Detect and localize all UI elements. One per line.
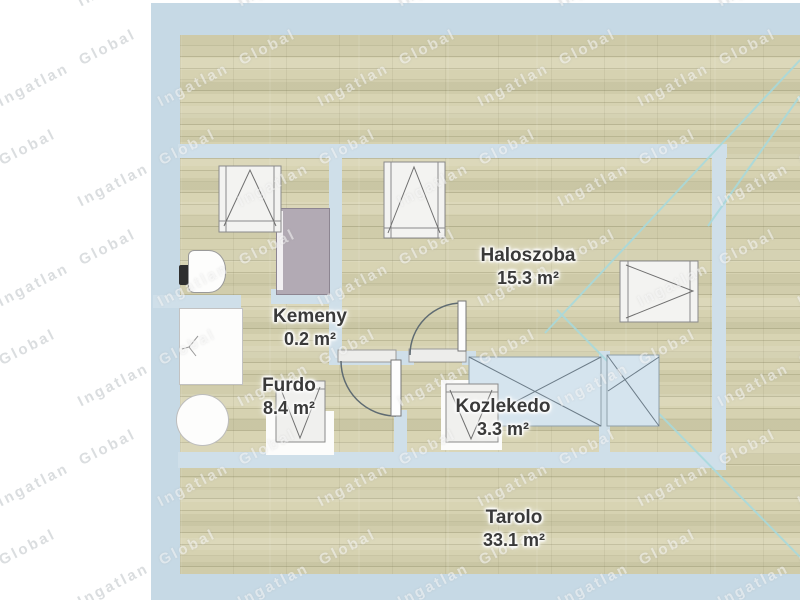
wall-furdo-kozlekedo [394, 410, 407, 468]
shower-partition [153, 295, 241, 308]
outer-wall-bottom [151, 574, 800, 600]
floorplan-canvas: Ingatlan GlobalIngatlan GlobalIngatlan G… [0, 0, 800, 600]
wall-furdo-haloszoba [329, 144, 342, 365]
wood-floor [180, 35, 800, 574]
wall-rooms-top [178, 144, 727, 158]
outer-wall-top [151, 3, 800, 35]
wardrobe-door-strip [277, 211, 283, 290]
wall-rooms-bottom [178, 452, 726, 468]
bathtub [176, 394, 229, 446]
kozlekedo-window-recess [441, 380, 502, 450]
wardrobe [276, 208, 330, 295]
wall-furdo-south [329, 351, 414, 365]
toilet [188, 250, 226, 293]
wall-kozlekedo-north [462, 351, 476, 365]
floorplan [0, 0, 800, 600]
shower-tray [179, 308, 243, 385]
furdo-window-recess [266, 411, 334, 455]
wall-rooms-right [712, 144, 726, 470]
wall-kozlekedo-east [599, 351, 610, 468]
